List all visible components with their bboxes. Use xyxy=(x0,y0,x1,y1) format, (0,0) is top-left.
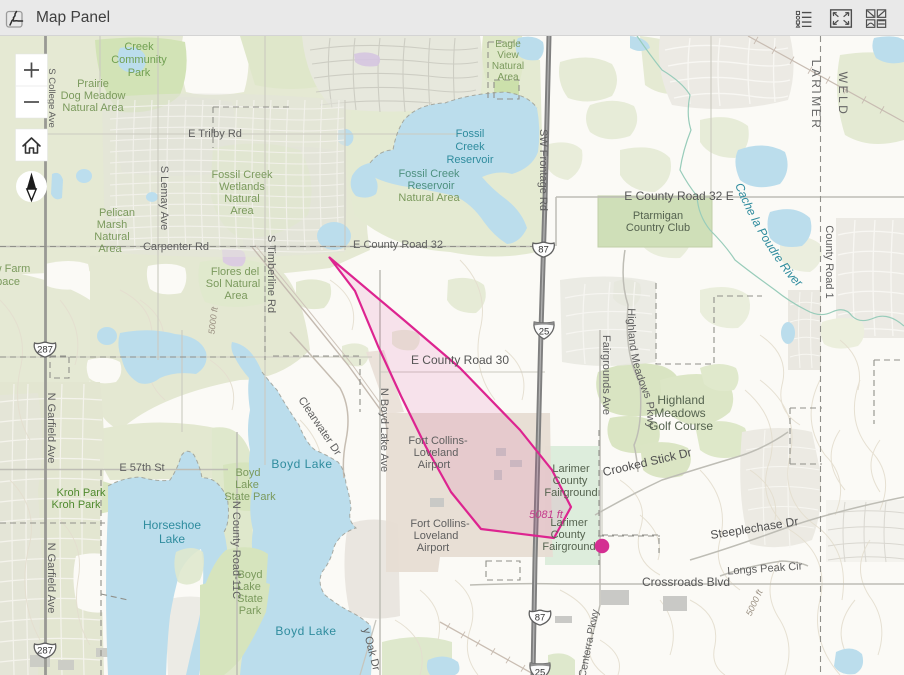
svg-text:E County Road 32: E County Road 32 xyxy=(353,239,443,251)
svg-text:Fairground: Fairground xyxy=(544,487,597,499)
svg-text:Sol Natural: Sol Natural xyxy=(206,278,260,290)
svg-text:Lake: Lake xyxy=(159,532,185,546)
svg-text:Area: Area xyxy=(98,243,122,255)
svg-text:Boyd Lake: Boyd Lake xyxy=(271,457,332,471)
svg-text:Fairgrounds Ave: Fairgrounds Ave xyxy=(600,335,612,415)
svg-text:Natural: Natural xyxy=(492,61,524,72)
svg-text:Eagle: Eagle xyxy=(495,39,521,50)
svg-text:Airport: Airport xyxy=(418,459,450,471)
svg-text:pace: pace xyxy=(0,276,20,288)
svg-text:N Boyd Lake Ave: N Boyd Lake Ave xyxy=(378,388,390,472)
svg-text:Fort Collins-: Fort Collins- xyxy=(408,435,468,447)
svg-text:Park: Park xyxy=(128,67,151,79)
svg-text:Lake: Lake xyxy=(235,479,259,491)
svg-text:Fossil Creek: Fossil Creek xyxy=(211,169,273,181)
svg-text:Area: Area xyxy=(497,72,519,83)
svg-text:Fairground: Fairground xyxy=(542,541,595,553)
svg-text:Prairie: Prairie xyxy=(77,78,109,90)
svg-text:N Garfield Ave: N Garfield Ave xyxy=(45,543,57,614)
svg-text:Creek: Creek xyxy=(455,141,485,153)
svg-text:Ptarmigan: Ptarmigan xyxy=(633,210,683,222)
svg-text:Creek: Creek xyxy=(124,41,154,53)
svg-text:LARIMER: LARIMER xyxy=(809,60,823,131)
svg-text:Natural Area: Natural Area xyxy=(62,102,124,114)
svg-text:Boyd: Boyd xyxy=(235,467,260,479)
svg-text:287: 287 xyxy=(37,646,53,657)
svg-text:S Lemay Ave: S Lemay Ave xyxy=(158,166,170,231)
svg-text:5081 ft: 5081 ft xyxy=(529,509,564,521)
svg-text:Natural Area: Natural Area xyxy=(398,192,460,204)
svg-text:Meadows: Meadows xyxy=(654,406,705,420)
svg-text:25: 25 xyxy=(535,668,546,675)
svg-text:Airport: Airport xyxy=(417,542,449,554)
svg-text:County Road 1: County Road 1 xyxy=(823,225,835,298)
svg-text:S Timberline Rd: S Timberline Rd xyxy=(265,235,277,313)
svg-text:87: 87 xyxy=(535,613,546,624)
svg-text:Park: Park xyxy=(239,605,262,617)
svg-text:Fossil: Fossil xyxy=(456,128,485,140)
svg-text:E County Road 30: E County Road 30 xyxy=(411,353,509,367)
svg-text:County: County xyxy=(551,529,586,541)
svg-text:Natural: Natural xyxy=(224,193,259,205)
svg-text:Golf Course: Golf Course xyxy=(649,419,713,433)
svg-text:Area: Area xyxy=(230,205,254,217)
svg-text:Fort Collins-: Fort Collins- xyxy=(410,518,470,530)
svg-text:E Trilby Rd: E Trilby Rd xyxy=(188,128,242,140)
svg-text:Reservoir: Reservoir xyxy=(407,180,454,192)
svg-text:Country Club: Country Club xyxy=(626,222,690,234)
svg-text:Horseshoe: Horseshoe xyxy=(143,518,201,532)
svg-text:SW Frontage Rd: SW Frontage Rd xyxy=(537,129,549,211)
svg-text:Dog Meadow: Dog Meadow xyxy=(61,90,126,102)
svg-text:E 57th St: E 57th St xyxy=(119,462,164,474)
svg-text:View: View xyxy=(497,50,519,61)
svg-text:N Garfield Ave: N Garfield Ave xyxy=(45,393,57,464)
svg-text:Natural: Natural xyxy=(94,231,129,243)
svg-text:287: 287 xyxy=(37,345,53,356)
svg-text:Kroh Park: Kroh Park xyxy=(52,499,101,511)
svg-text:Kroh Park: Kroh Park xyxy=(57,487,106,499)
svg-text:WELD: WELD xyxy=(836,72,850,117)
svg-text:Fossil Creek: Fossil Creek xyxy=(398,168,460,180)
svg-text:N County Road-11C: N County Road-11C xyxy=(230,501,242,599)
svg-text:Loveland: Loveland xyxy=(414,530,459,542)
svg-text:Highland: Highland xyxy=(657,393,704,407)
svg-text:County: County xyxy=(553,475,588,487)
svg-text:Crossroads Blvd: Crossroads Blvd xyxy=(642,575,730,589)
svg-text:w Farm: w Farm xyxy=(0,263,30,275)
svg-text:Community: Community xyxy=(111,54,167,66)
svg-text:87: 87 xyxy=(538,245,549,256)
svg-text:Reservoir: Reservoir xyxy=(446,154,493,166)
svg-text:25: 25 xyxy=(539,327,550,338)
svg-text:Flores del: Flores del xyxy=(211,266,259,278)
svg-text:Larimer: Larimer xyxy=(552,463,590,475)
svg-text:Marsh: Marsh xyxy=(97,219,128,231)
svg-text:E County Road 32 E: E County Road 32 E xyxy=(624,189,733,203)
svg-text:Loveland: Loveland xyxy=(414,447,459,459)
svg-text:Boyd Lake: Boyd Lake xyxy=(275,624,336,638)
svg-text:Wetlands: Wetlands xyxy=(219,181,265,193)
svg-text:Pelican: Pelican xyxy=(99,207,135,219)
svg-text:Carpenter Rd: Carpenter Rd xyxy=(143,241,209,253)
svg-text:Area: Area xyxy=(224,290,248,302)
